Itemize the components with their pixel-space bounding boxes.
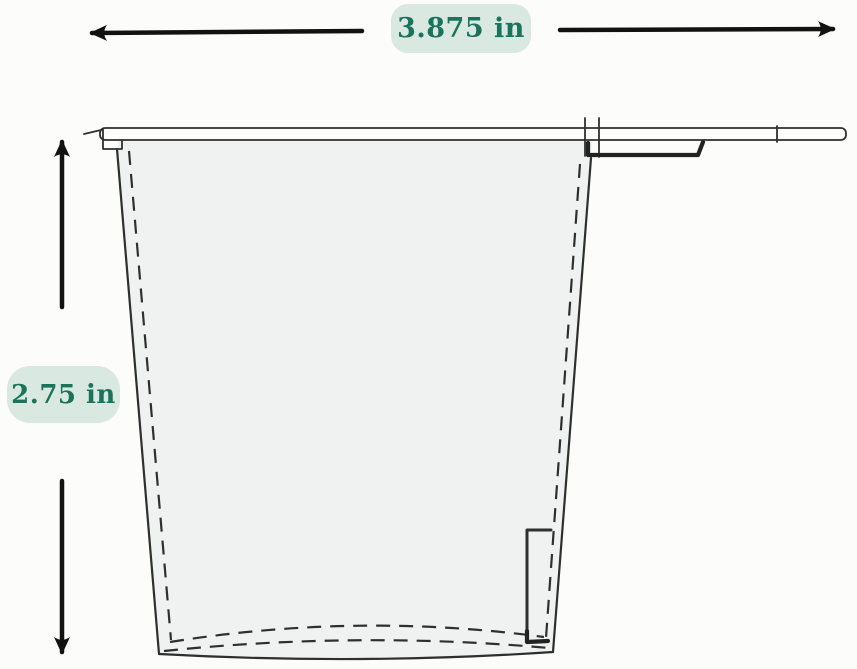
cup-interior-fill — [117, 141, 592, 659]
height-dimension-label: 2.75 in — [7, 366, 120, 423]
dimension-diagram: 3.875 in 2.75 in — [0, 0, 857, 669]
width-dimension-label: 3.875 in — [391, 4, 531, 53]
flange-bar — [100, 128, 846, 140]
hook-bracket — [588, 142, 703, 155]
arrow-right-icon — [560, 29, 833, 30]
flange-left-overshoot — [84, 130, 101, 134]
arrow-left-icon — [92, 31, 362, 33]
cup-cross-section-drawing — [0, 0, 857, 669]
